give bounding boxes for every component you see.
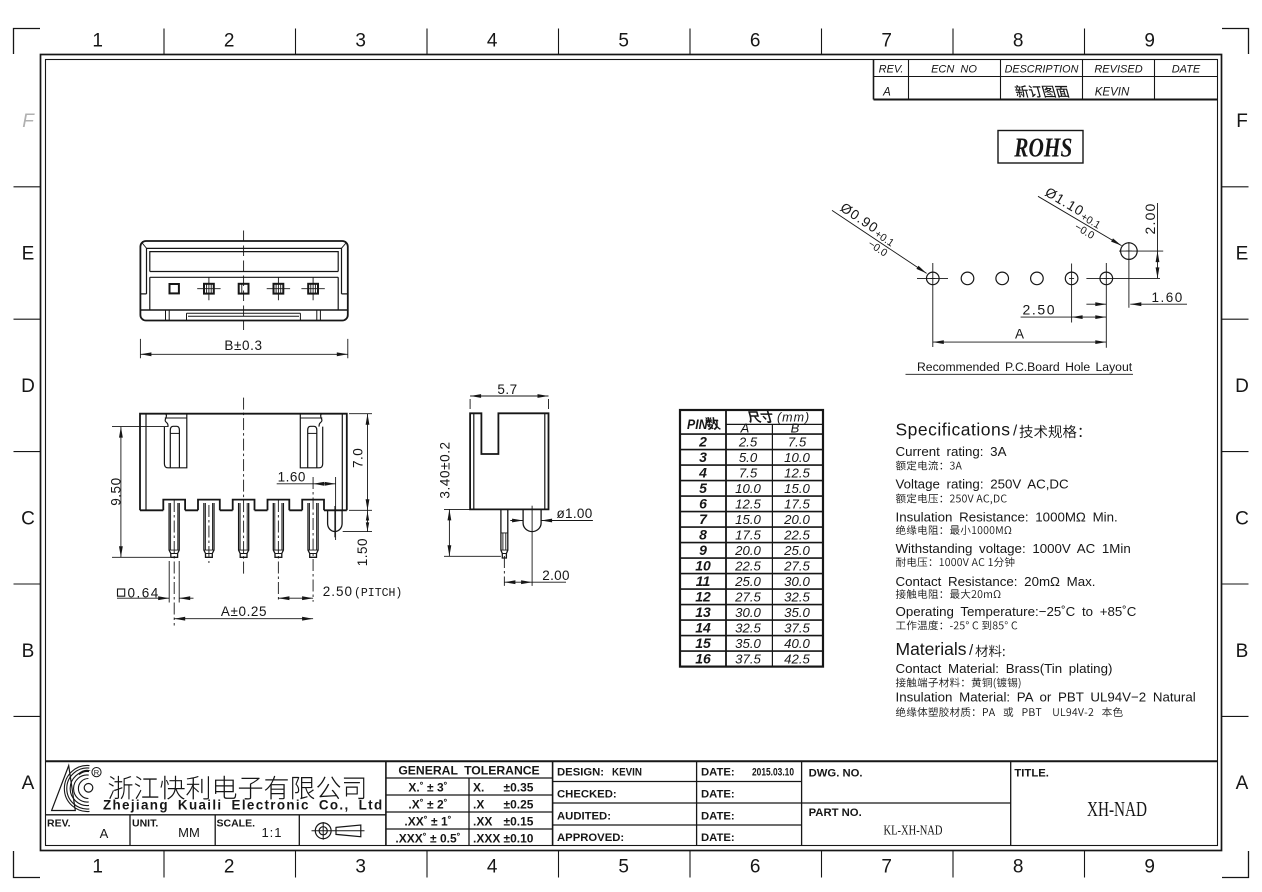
svg-text:Insulation Resistance: 1000MΩ: Insulation Resistance: 1000MΩ Min.	[896, 509, 1118, 524]
svg-text:2.50: 2.50	[1023, 302, 1057, 318]
svg-text:4: 4	[698, 464, 707, 480]
svg-text:30.0: 30.0	[784, 574, 810, 589]
svg-text:1.60: 1.60	[278, 469, 306, 484]
svg-text:GENERAL TOLERANCE: GENERAL TOLERANCE	[398, 764, 539, 778]
svg-text:Insulation Material: PA or PBT: Insulation Material: PA or PBT UL94V−2 N…	[896, 690, 1196, 705]
svg-text:9.50: 9.50	[108, 477, 123, 505]
svg-text:DWG. NO.: DWG. NO.	[809, 768, 863, 780]
svg-text:ECN NO: ECN NO	[931, 64, 977, 76]
svg-text:DESIGN:: DESIGN:	[557, 767, 604, 779]
svg-text:35.0: 35.0	[784, 605, 810, 620]
svg-text:KEVIN: KEVIN	[1095, 87, 1130, 99]
svg-text:9: 9	[1144, 857, 1155, 878]
svg-text:2.00: 2.00	[1142, 202, 1158, 234]
svg-text:ø1.00: ø1.00	[557, 506, 593, 521]
svg-text:8: 8	[699, 526, 707, 542]
svg-text:10.0: 10.0	[735, 481, 761, 496]
svg-text:Contact Material: Brass(Tin pl: Contact Material: Brass(Tin plating)	[896, 661, 1113, 676]
svg-text:DATE:: DATE:	[701, 832, 735, 844]
svg-text:7.0: 7.0	[351, 448, 366, 468]
svg-text:PIN: PIN	[687, 417, 708, 432]
svg-text:Operating Temperature:−25˚C to: Operating Temperature:−25˚C to +85˚C	[896, 604, 1137, 619]
svg-text:27.5: 27.5	[734, 589, 761, 604]
svg-text:DESCRIPTION: DESCRIPTION	[1005, 64, 1079, 76]
svg-text:37.5: 37.5	[784, 620, 810, 635]
svg-text:2: 2	[698, 433, 707, 449]
svg-text:14: 14	[695, 619, 711, 635]
svg-text:KL-XH-NAD: KL-XH-NAD	[884, 824, 943, 839]
svg-text:10.0: 10.0	[784, 450, 810, 465]
svg-text:3: 3	[355, 857, 366, 878]
svg-text:Recommended P.C.Board Hole Lay: Recommended P.C.Board Hole Layout	[917, 360, 1133, 374]
svg-text:C: C	[21, 508, 35, 529]
svg-text:MM: MM	[178, 825, 200, 840]
svg-text:.X: .X	[473, 798, 484, 812]
svg-text:12: 12	[695, 588, 711, 604]
svg-text:9: 9	[1144, 31, 1155, 52]
svg-text:AUDITED:: AUDITED:	[557, 811, 611, 823]
svg-text:±0.10: ±0.10	[504, 831, 534, 845]
svg-text:2.00: 2.00	[542, 568, 569, 583]
svg-text:12.5: 12.5	[735, 496, 761, 511]
svg-text:25.0: 25.0	[734, 574, 761, 589]
svg-text:1.60: 1.60	[1152, 290, 1184, 305]
svg-text:(PITCH): (PITCH)	[354, 587, 402, 600]
svg-text:17.5: 17.5	[784, 496, 810, 511]
svg-text:4: 4	[487, 31, 498, 52]
svg-text:TITLE.: TITLE.	[1014, 768, 1049, 780]
svg-text:15: 15	[695, 635, 711, 651]
svg-text:(mm): (mm)	[777, 411, 810, 425]
svg-text:KEVIN: KEVIN	[612, 767, 642, 779]
svg-text:A±0.25: A±0.25	[221, 604, 267, 619]
svg-text:1.50: 1.50	[355, 538, 370, 566]
svg-text:12.5: 12.5	[784, 465, 810, 480]
svg-text:8: 8	[1013, 857, 1024, 878]
svg-text:20.0: 20.0	[734, 543, 761, 558]
svg-text:F: F	[1236, 111, 1248, 132]
svg-text:25.0: 25.0	[783, 543, 810, 558]
svg-text:REVISED: REVISED	[1094, 64, 1142, 76]
svg-text:2: 2	[224, 857, 235, 878]
svg-text:DATE:: DATE:	[701, 811, 735, 823]
svg-text:.XXX˚ ± 0.5˚: .XXX˚ ± 0.5˚	[395, 831, 460, 845]
svg-text:0.64: 0.64	[128, 585, 160, 600]
svg-text:32.5: 32.5	[784, 589, 810, 604]
svg-text:UNIT.: UNIT.	[132, 818, 158, 830]
svg-text:C: C	[1235, 508, 1249, 529]
svg-text:A: A	[1015, 327, 1024, 342]
svg-text:.X˚ ± 2˚: .X˚ ± 2˚	[408, 798, 447, 812]
svg-text:E: E	[22, 244, 35, 265]
svg-text:6: 6	[750, 31, 761, 52]
svg-text:3.40±0.2: 3.40±0.2	[437, 441, 452, 498]
svg-text:10: 10	[695, 557, 711, 573]
svg-text:2015.03.10: 2015.03.10	[752, 767, 794, 779]
svg-text:PART NO.: PART NO.	[809, 807, 862, 819]
svg-text:±0.15: ±0.15	[504, 815, 534, 829]
svg-text:X.˚ ± 3˚: X.˚ ± 3˚	[408, 781, 447, 795]
svg-text:35.0: 35.0	[735, 636, 761, 651]
svg-text:5: 5	[618, 857, 629, 878]
svg-text:A: A	[1236, 773, 1249, 794]
svg-text:ROHS: ROHS	[1014, 132, 1073, 162]
svg-text:APPROVED:: APPROVED:	[557, 832, 624, 844]
svg-text:F: F	[22, 111, 35, 132]
svg-text:±0.35: ±0.35	[504, 781, 534, 795]
svg-text:DATE: DATE	[1172, 64, 1201, 76]
svg-text:2: 2	[224, 31, 235, 52]
svg-text:6: 6	[699, 495, 707, 511]
svg-text:7: 7	[881, 857, 892, 878]
svg-text:17.5: 17.5	[735, 527, 761, 542]
svg-text:5.7: 5.7	[497, 382, 517, 397]
svg-text:5: 5	[699, 480, 707, 496]
svg-text:B±0.3: B±0.3	[224, 338, 262, 353]
svg-text:7.5: 7.5	[788, 434, 807, 449]
svg-text:32.5: 32.5	[735, 620, 761, 635]
svg-text:D: D	[1235, 376, 1249, 397]
svg-text:2.5: 2.5	[738, 434, 758, 449]
svg-text:7: 7	[881, 31, 892, 52]
svg-text:Current rating: 3A: Current rating: 3A	[896, 444, 1007, 459]
svg-text:20.0: 20.0	[783, 512, 810, 527]
svg-text:A: A	[100, 826, 109, 841]
svg-text:7: 7	[699, 511, 708, 527]
svg-text:A: A	[882, 87, 891, 99]
svg-text:.XX: .XX	[473, 815, 492, 829]
svg-text:22.5: 22.5	[734, 558, 761, 573]
svg-text:15.0: 15.0	[784, 481, 810, 496]
svg-text:27.5: 27.5	[783, 558, 810, 573]
svg-text:REV.: REV.	[879, 64, 904, 76]
svg-text:XH-NAD: XH-NAD	[1087, 797, 1147, 821]
svg-text:8: 8	[1013, 31, 1024, 52]
svg-text:4: 4	[487, 857, 498, 878]
svg-text:±0.25: ±0.25	[504, 798, 534, 812]
svg-text:1: 1	[92, 31, 103, 52]
svg-text:16: 16	[695, 650, 711, 666]
svg-text:5: 5	[618, 31, 629, 52]
svg-text:6: 6	[750, 857, 761, 878]
svg-text:3: 3	[699, 449, 707, 465]
svg-text:7.5: 7.5	[739, 465, 758, 480]
svg-text:A: A	[22, 773, 35, 794]
svg-text:.XXX: .XXX	[473, 831, 500, 845]
svg-text:37.5: 37.5	[735, 651, 761, 666]
svg-text:Specifications: Specifications	[896, 420, 1011, 440]
svg-text:DATE:: DATE:	[701, 789, 735, 801]
svg-text:D: D	[21, 376, 35, 397]
svg-text:SCALE.: SCALE.	[217, 818, 256, 830]
svg-text:42.5: 42.5	[784, 651, 810, 666]
svg-text:3: 3	[355, 31, 366, 52]
svg-text:Withstanding voltage: 1000V A: Withstanding voltage: 1000V AC 1Min	[896, 541, 1131, 556]
svg-text:Materials: Materials	[896, 639, 967, 659]
svg-text:Voltage rating: 250V AC,DC: Voltage rating: 250V AC,DC	[896, 477, 1069, 492]
svg-text:1:1: 1:1	[261, 825, 282, 840]
svg-text:R: R	[94, 768, 100, 777]
svg-text:30.0: 30.0	[735, 605, 761, 620]
svg-text:11: 11	[696, 573, 711, 589]
svg-text:13: 13	[695, 604, 711, 620]
svg-text:DATE:: DATE:	[701, 767, 735, 779]
svg-text:1: 1	[92, 857, 103, 878]
svg-text:REV.: REV.	[47, 818, 71, 830]
svg-text:CHECKED:: CHECKED:	[557, 789, 617, 801]
svg-text:5.0: 5.0	[739, 450, 758, 465]
svg-text:40.0: 40.0	[784, 636, 810, 651]
svg-text:15.0: 15.0	[735, 512, 761, 527]
svg-text:9: 9	[699, 542, 707, 558]
svg-text:Contact Resistance: 20mΩ Max.: Contact Resistance: 20mΩ Max.	[896, 574, 1096, 589]
svg-text:X.: X.	[473, 781, 484, 795]
svg-text:A: A	[740, 420, 750, 435]
svg-text:B: B	[1236, 641, 1249, 662]
svg-text:.XX˚ ± 1˚: .XX˚ ± 1˚	[404, 815, 451, 829]
svg-text:B: B	[22, 641, 35, 662]
svg-text:22.5: 22.5	[783, 527, 810, 542]
svg-text:2.50: 2.50	[323, 584, 353, 599]
svg-text:Zhejiang Kuaili Electronic Co.: Zhejiang Kuaili Electronic Co., Ltd	[103, 798, 384, 813]
svg-text:E: E	[1236, 244, 1249, 265]
